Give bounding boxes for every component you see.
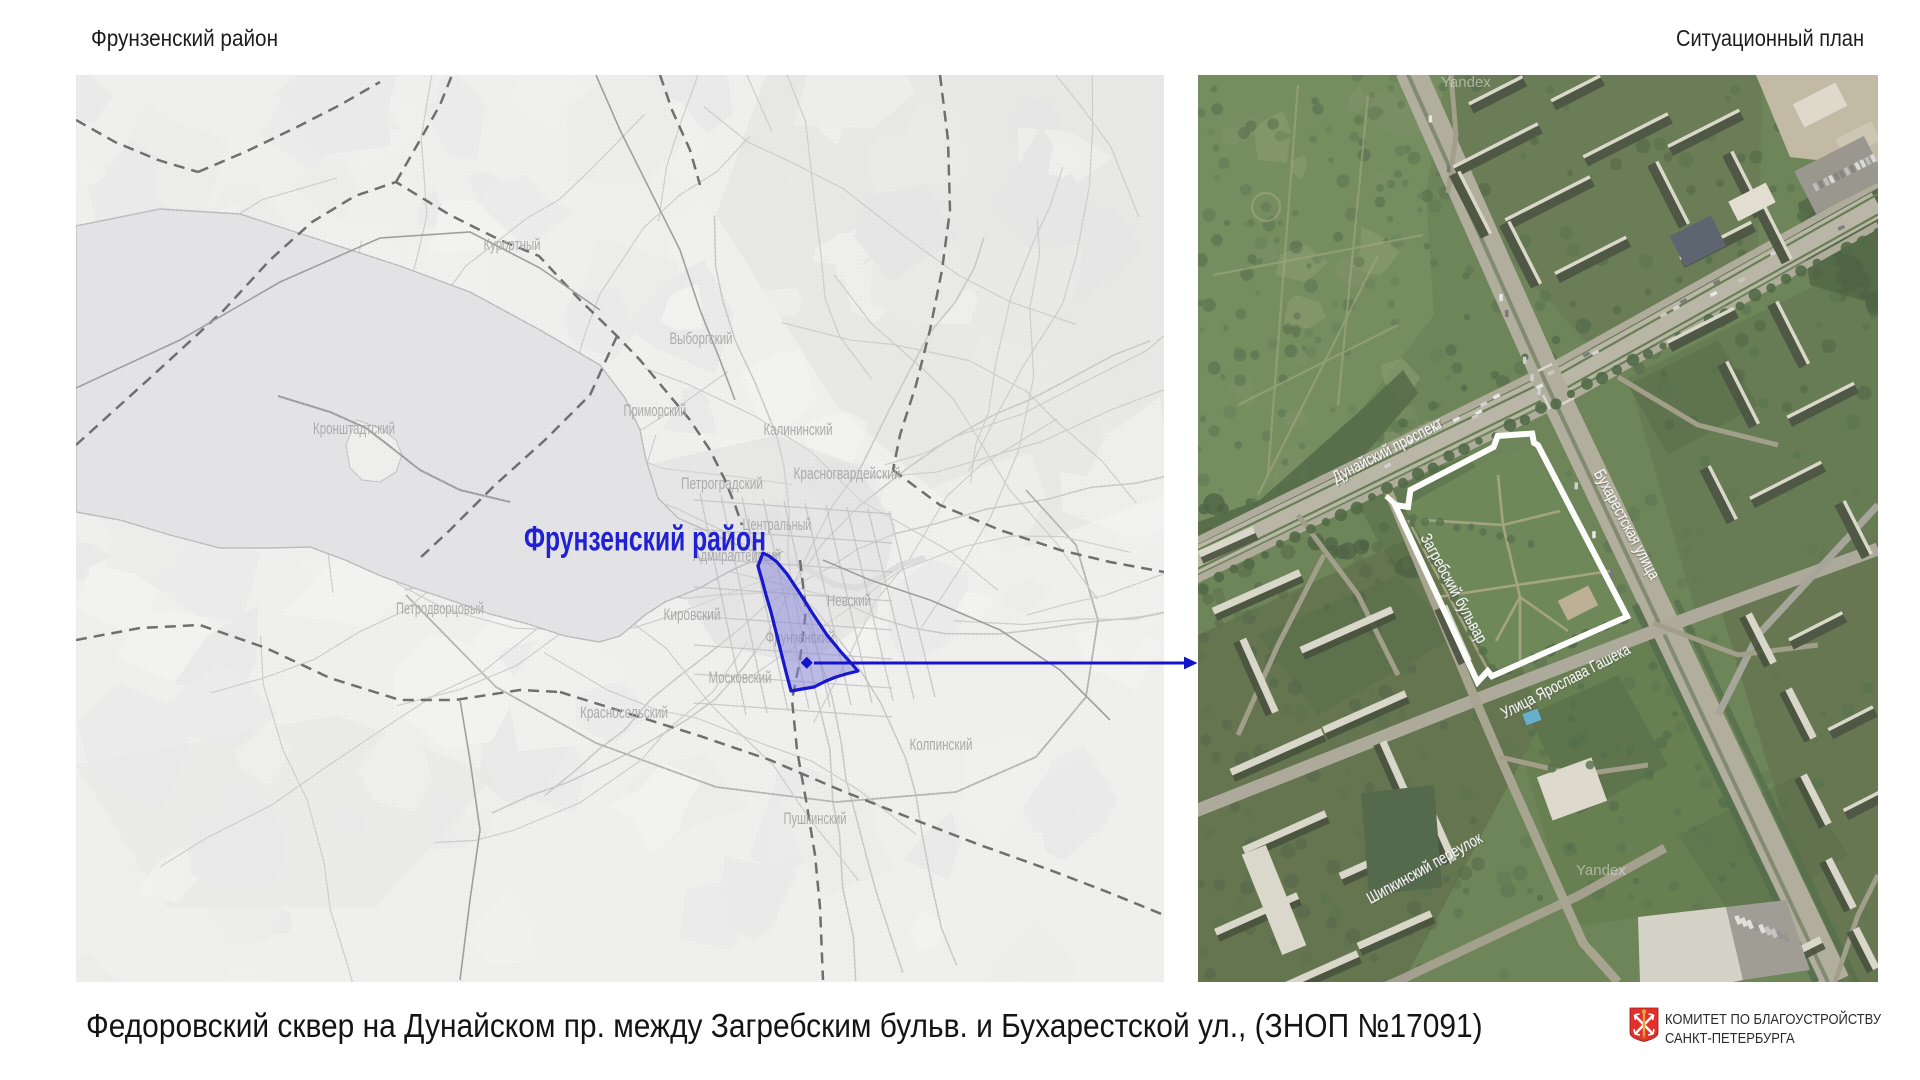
svg-text:Невский: Невский <box>827 591 871 610</box>
svg-text:Калининский: Калининский <box>764 420 833 439</box>
svg-text:Фрунзенский район: Фрунзенский район <box>524 520 766 559</box>
svg-text:Приморский: Приморский <box>624 401 687 420</box>
svg-text:Красногвардейский: Красногвардейский <box>794 464 901 483</box>
svg-text:Выборгский: Выборгский <box>670 329 733 348</box>
svg-text:Петродворцовый: Петродворцовый <box>396 599 484 618</box>
svg-text:Петроградский: Петроградский <box>681 474 763 493</box>
svg-text:Пушкинский: Пушкинский <box>784 809 847 828</box>
svg-text:Кронштадтский: Кронштадтский <box>313 419 395 438</box>
svg-text:Курортный: Курортный <box>484 235 541 254</box>
svg-text:Московский: Московский <box>709 668 772 687</box>
svg-text:Колпинский: Колпинский <box>910 735 973 754</box>
svg-text:Красносельский: Красносельский <box>580 703 668 722</box>
svg-text:Кировский: Кировский <box>664 605 721 624</box>
